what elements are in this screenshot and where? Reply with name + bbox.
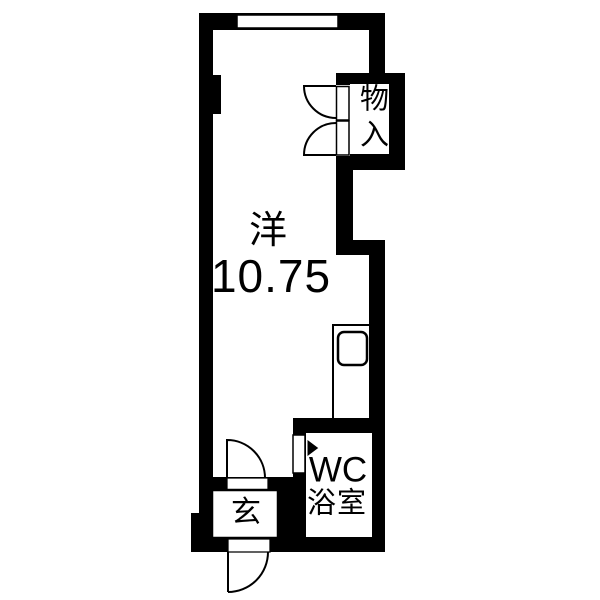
front-door-swing-arc xyxy=(228,552,268,592)
closet-door-leaf-bottom xyxy=(337,121,350,155)
washer-pan xyxy=(338,332,367,365)
closet-door-swing-arc-top xyxy=(304,86,336,118)
wall-left-pillar-bump xyxy=(213,75,221,114)
closet-label: 物入 xyxy=(357,83,386,155)
floor-plan: 洋 10.75 物入 WC 浴室 玄 xyxy=(0,0,600,600)
interior-door-swing-arc xyxy=(227,440,265,478)
bathroom-label: 浴室 xyxy=(307,490,367,519)
wall-right-lower xyxy=(369,240,385,432)
main-room-label: 洋 xyxy=(249,212,287,250)
closet-door-swing-arc-bottom xyxy=(304,123,336,155)
wall-right-upper xyxy=(369,13,385,73)
closet-door-leaf-top xyxy=(337,87,350,121)
wall-bottom xyxy=(191,538,385,552)
bathroom-door-panel xyxy=(293,435,305,473)
front-door-opening xyxy=(228,539,270,552)
entrance-label: 玄 xyxy=(231,498,261,528)
main-room-size-label: 10.75 xyxy=(211,253,331,299)
window-top xyxy=(237,15,338,28)
wc-label: WC xyxy=(309,453,367,488)
